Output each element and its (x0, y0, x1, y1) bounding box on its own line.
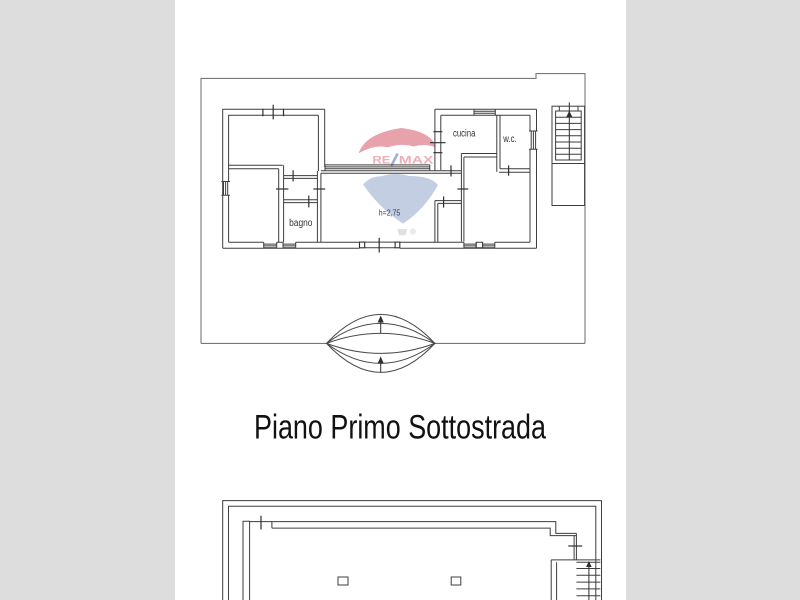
svg-text:cucina: cucina (453, 129, 476, 140)
svg-text:bagno: bagno (289, 218, 313, 229)
svg-text:w.c.: w.c. (502, 134, 516, 145)
svg-text:h=2,75: h=2,75 (379, 208, 401, 217)
svg-text:Piano Primo Sottostrada: Piano Primo Sottostrada (254, 409, 547, 447)
